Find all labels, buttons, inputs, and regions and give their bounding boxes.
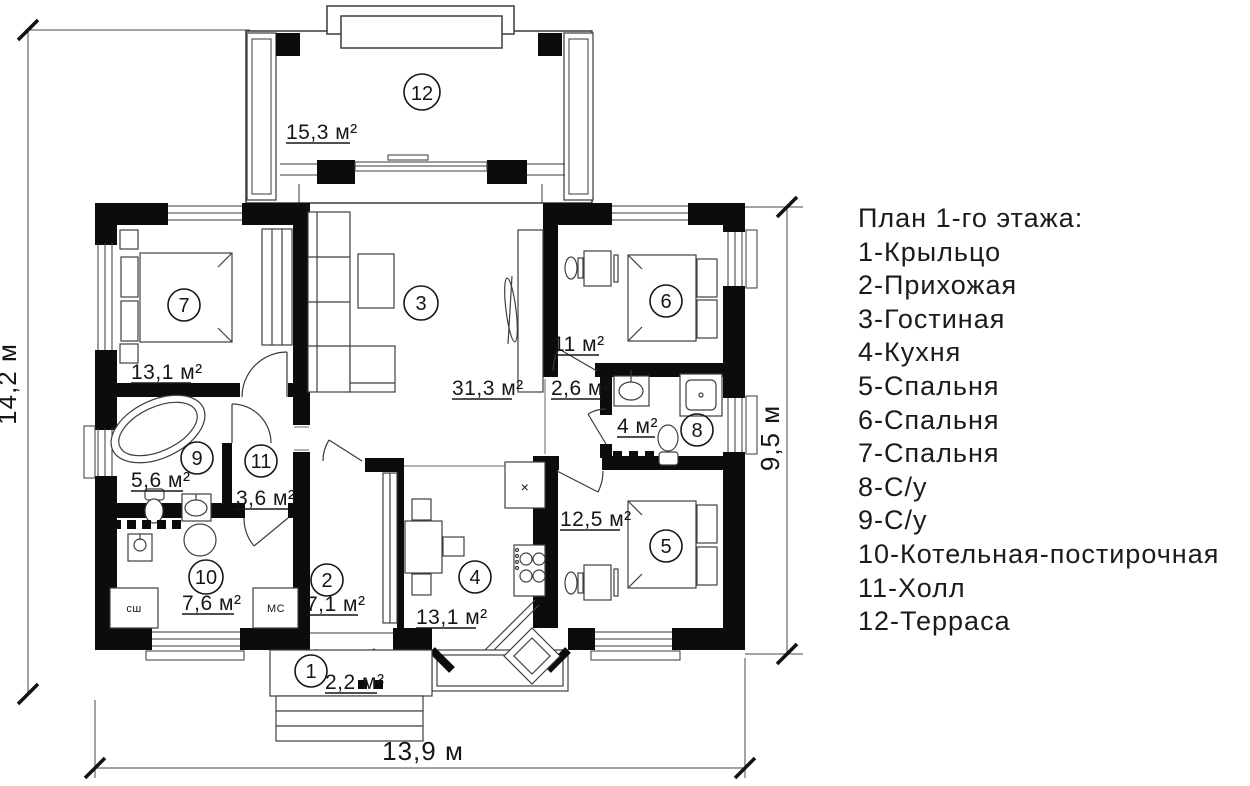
area-room1: 2,2 м² [325, 671, 384, 694]
sink-room10 [128, 534, 152, 561]
dryer-label: сш [126, 603, 141, 615]
porch [270, 650, 432, 741]
legend-item-7: 7-Спальня [858, 437, 1248, 471]
stove [514, 545, 545, 596]
area-room11: 3,6 м² [236, 487, 295, 510]
coffee-table [358, 254, 394, 308]
area-room9: 5,6 м² [131, 469, 190, 492]
sink-room9 [182, 494, 211, 521]
terrace-glazing [280, 155, 565, 203]
area-room3: 31,3 м² [452, 377, 524, 400]
room-number-6: 6 [660, 291, 671, 313]
room-number-2: 2 [321, 570, 332, 592]
tv-unit [502, 230, 543, 392]
legend-item-2: 2-Прихожая [858, 269, 1248, 303]
room-number-4: 4 [469, 567, 480, 589]
dim-right: 9,5 м [755, 405, 785, 471]
area-room4: 13,1 м² [416, 606, 488, 629]
legend-item-4: 4-Кухня [858, 336, 1248, 370]
legend-item-9: 9-С/у [858, 504, 1248, 538]
desk-room5 [565, 565, 618, 600]
area-room5: 12,5 м² [560, 508, 632, 531]
dining-set [405, 499, 464, 595]
legend-item-12: 12-Терраса [858, 605, 1248, 639]
bed-room5 [628, 501, 717, 588]
hood-mark: × [521, 479, 530, 495]
area-room7: 13,1 м² [131, 361, 203, 384]
wardrobe-hall [383, 473, 397, 623]
bed-room6 [628, 255, 717, 341]
wardrobe-room7 [262, 229, 292, 345]
area-room10: 7,6 м² [182, 592, 241, 615]
area-vestibule: 2,6 м² [551, 377, 610, 400]
washer-label: МС [267, 603, 285, 615]
room-number-3: 3 [415, 293, 426, 315]
desk-room6 [565, 251, 618, 286]
legend-item-1: 1-Крыльцо [858, 236, 1248, 270]
legend-item-3: 3-Гостиная [858, 303, 1248, 337]
legend-item-8: 8-С/у [858, 471, 1248, 505]
toilet-room8 [658, 425, 678, 465]
room-number-1: 1 [305, 661, 316, 683]
legend-item-10: 10-Котельная-постирочная [858, 538, 1248, 572]
room-number-11: 11 [251, 451, 272, 473]
room-number-7: 7 [178, 295, 189, 317]
legend-item-6: 6-Спальня [858, 404, 1248, 438]
dim-left: 14,2 м [0, 343, 22, 425]
area-room2: 7,1 м² [306, 593, 365, 616]
boiler [184, 524, 216, 556]
floor-plan-page: 1 2 3 4 5 6 7 8 9 10 11 12 2,2 м² 7,1 м²… [0, 0, 1250, 786]
room-number-9: 9 [191, 448, 202, 470]
radiator-dots-room8 [613, 451, 654, 460]
bed-room7 [120, 230, 232, 363]
legend-item-5: 5-Спальня [858, 370, 1248, 404]
area-room6: 11 м² [553, 333, 605, 356]
room-number-5: 5 [660, 536, 671, 558]
legend: План 1-го этажа: 1-Крыльцо 2-Прихожая 3-… [858, 202, 1248, 639]
radiator-dots-room10 [112, 520, 181, 529]
toilet-room9 [145, 489, 164, 523]
room-number-12: 12 [411, 83, 433, 105]
area-room12: 15,3 м² [286, 121, 358, 144]
room-number-10: 10 [195, 567, 217, 589]
area-room8: 4 м² [617, 415, 658, 438]
shower [680, 374, 722, 416]
legend-title: План 1-го этажа: [858, 202, 1248, 236]
legend-item-11: 11-Холл [858, 572, 1248, 606]
dim-bottom: 13,9 м [382, 736, 464, 766]
room-number-8: 8 [691, 420, 702, 442]
